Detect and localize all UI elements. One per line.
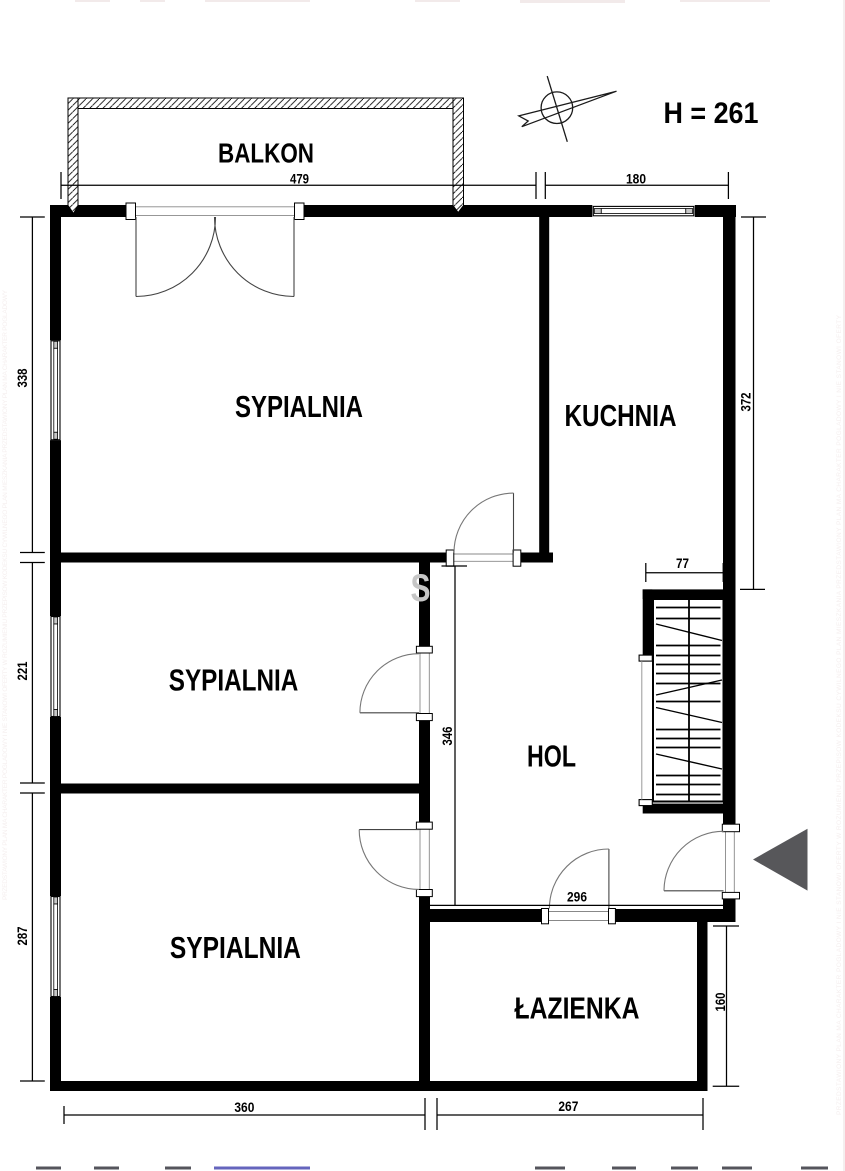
svg-text:267: 267 [558,1099,578,1114]
svg-text:S: S [411,567,431,610]
svg-text:KUCHNIA: KUCHNIA [565,399,677,433]
svg-text:221: 221 [15,661,30,680]
svg-text:BALKON: BALKON [218,137,314,168]
svg-text:H = 261: H = 261 [664,97,759,130]
svg-text:338: 338 [15,368,30,387]
svg-text:372: 372 [739,392,754,411]
svg-text:160: 160 [713,992,728,1011]
svg-text:180: 180 [626,172,646,187]
svg-text:PRZEDSTAWIONY PLAN MA CHARAKTE: PRZEDSTAWIONY PLAN MA CHARAKTER POGLADOW… [836,314,843,1115]
svg-text:PRZEDSTAWIONY PLAN MA CHARAKTE: PRZEDSTAWIONY PLAN MA CHARAKTER POGLADOW… [2,289,9,900]
svg-text:77: 77 [676,556,689,571]
svg-text:287: 287 [15,926,30,945]
svg-text:SYPIALNIA: SYPIALNIA [169,664,299,698]
svg-text:346: 346 [440,726,455,745]
svg-text:SYPIALNIA: SYPIALNIA [235,390,363,424]
svg-text:296: 296 [567,890,587,905]
svg-text:HOL: HOL [527,739,576,773]
svg-text:360: 360 [234,1100,254,1115]
svg-text:479: 479 [290,172,309,187]
svg-text:SYPIALNIA: SYPIALNIA [170,931,301,965]
svg-text:ŁAZIENKA: ŁAZIENKA [515,992,640,1026]
